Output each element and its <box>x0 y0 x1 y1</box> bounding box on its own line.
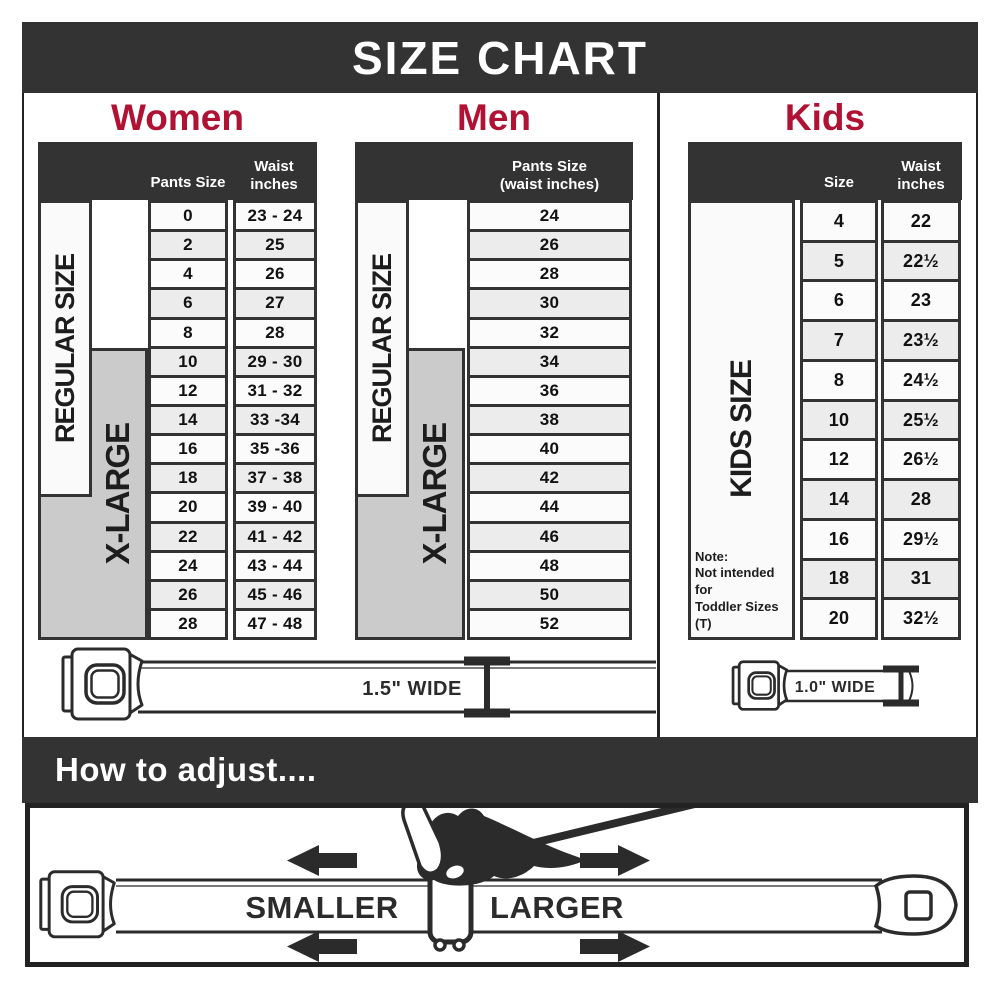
kids-table-header: Size Waist inches <box>688 142 962 200</box>
men-pants-size-column: 242628303234363840424446485052 <box>467 200 632 640</box>
kids-seatbelt-buckle-icon <box>733 662 787 710</box>
kids-waist-cell: 23½ <box>881 319 961 362</box>
kids-size-label-box: KIDS SIZE Note: Not intended for Toddler… <box>688 200 795 640</box>
men-size-table: Pants Size (waist inches) REGULAR SIZE X… <box>355 142 633 640</box>
men-pants-size-cell: 32 <box>467 317 632 349</box>
women-pants-size-cell: 0 <box>148 200 228 232</box>
women-waist-cell: 43 - 44 <box>233 550 317 582</box>
women-pants-size-cell: 20 <box>148 491 228 523</box>
kids-table-body: KIDS SIZE Note: Not intended for Toddler… <box>688 200 962 640</box>
kids-waist-cell: 29½ <box>881 518 961 561</box>
men-xlarge-label: X-LARGE <box>416 423 454 565</box>
men-pants-size-cell: 48 <box>467 550 632 582</box>
men-table-header: Pants Size (waist inches) <box>355 142 633 200</box>
men-xlarge-region <box>355 497 410 640</box>
women-pants-size-cell: 8 <box>148 317 228 349</box>
kids-waist-cell: 22 <box>881 200 961 243</box>
women-table-header: Pants Size Waist inches <box>38 142 317 200</box>
women-waist-cell: 37 - 38 <box>233 462 317 494</box>
men-pants-size-cell: 46 <box>467 521 632 553</box>
men-pants-size-cell: 28 <box>467 258 632 290</box>
adult-belt-width-label: 1.5" WIDE <box>362 678 462 700</box>
kids-waist-cell: 31 <box>881 558 961 601</box>
women-regular-size-label-box: REGULAR SIZE <box>38 200 92 497</box>
women-pants-size-cell: 6 <box>148 287 228 319</box>
kids-size-cell: 14 <box>800 478 878 521</box>
men-pants-size-cell: 42 <box>467 462 632 494</box>
panel-left-border <box>22 93 24 737</box>
men-pants-size-cell: 26 <box>467 229 632 261</box>
arrow-left-top-icon <box>287 845 357 876</box>
kids-waist-cell: 24½ <box>881 359 961 402</box>
kids-size-cell: 10 <box>800 399 878 442</box>
women-pants-size-cell: 12 <box>148 375 228 407</box>
kids-waist-cell: 26½ <box>881 438 961 481</box>
kids-size-header: Size <box>800 174 878 192</box>
women-pants-size-cell: 28 <box>148 608 228 640</box>
pull-strap-line <box>488 808 736 854</box>
kids-waist-cell: 32½ <box>881 597 961 640</box>
kids-waist-cell: 22½ <box>881 240 961 283</box>
women-waist-cell: 28 <box>233 317 317 349</box>
larger-label: LARGER <box>490 890 624 925</box>
hand-illustration <box>403 808 736 886</box>
men-pants-size-cell: 34 <box>467 346 632 378</box>
women-pants-size-header: Pants Size <box>148 174 228 192</box>
women-size-table: Pants Size Waist inches REGULAR SIZE X-L… <box>38 142 317 640</box>
men-pants-size-cell: 38 <box>467 404 632 436</box>
kids-width-measure-icon <box>883 667 919 705</box>
men-xlarge-label-box: X-LARGE <box>407 348 465 640</box>
kids-size-cell: 6 <box>800 279 878 322</box>
title-bar: SIZE CHART <box>22 22 978 93</box>
women-pants-size-cell: 26 <box>148 579 228 611</box>
kids-size-cell: 20 <box>800 597 878 640</box>
women-pants-size-cell: 4 <box>148 258 228 290</box>
adult-seatbelt-buckle-icon <box>63 649 142 719</box>
women-waist-cell: 45 - 46 <box>233 579 317 611</box>
kids-size-cell: 8 <box>800 359 878 402</box>
kids-size-cell: 12 <box>800 438 878 481</box>
adjust-diagram: SMALLER LARGER <box>30 808 964 962</box>
arrow-left-bottom-icon <box>287 931 357 962</box>
men-table-body: REGULAR SIZE X-LARGE 2426283032343638404… <box>355 200 633 640</box>
women-pants-size-cell: 10 <box>148 346 228 378</box>
how-to-adjust-bar: How to adjust.... <box>22 737 978 803</box>
men-pants-size-cell: 52 <box>467 608 632 640</box>
women-waist-cell: 29 - 30 <box>233 346 317 378</box>
arrow-right-top-icon <box>580 845 650 876</box>
kids-waist-column: 2222½2323½24½25½26½2829½3132½ <box>881 200 961 640</box>
kids-size-cell: 4 <box>800 200 878 243</box>
men-pants-size-cell: 44 <box>467 491 632 523</box>
women-xlarge-label: X-LARGE <box>99 423 137 565</box>
kids-waist-cell: 28 <box>881 478 961 521</box>
women-waist-cell: 33 -34 <box>233 404 317 436</box>
kids-size-column: 45678101214161820 <box>800 200 878 640</box>
women-pants-size-cell: 24 <box>148 550 228 582</box>
belt-tip-icon <box>876 876 956 934</box>
kids-waist-cell: 25½ <box>881 399 961 442</box>
kids-section-title: Kids <box>688 98 962 138</box>
women-pants-size-cell: 16 <box>148 433 228 465</box>
kids-size-cell: 5 <box>800 240 878 283</box>
women-waist-header: Waist inches <box>233 158 315 194</box>
women-waist-cell: 25 <box>233 229 317 261</box>
page-title: SIZE CHART <box>352 31 648 85</box>
men-regular-size-label: REGULAR SIZE <box>367 254 398 443</box>
men-pants-size-cell: 24 <box>467 200 632 232</box>
kids-size-label: KIDS SIZE <box>725 360 759 498</box>
kids-belt-graphic: 1.0" WIDE <box>725 655 935 715</box>
women-pants-size-cell: 18 <box>148 462 228 494</box>
smaller-label: SMALLER <box>245 890 398 925</box>
women-pants-size-cell: 2 <box>148 229 228 261</box>
how-to-adjust-title: How to adjust.... <box>55 751 317 789</box>
kids-belt-width-label: 1.0" WIDE <box>795 679 876 696</box>
women-xlarge-region <box>38 497 93 640</box>
women-section-title: Women <box>38 98 317 138</box>
women-pants-size-column: 0246810121416182022242628 <box>148 200 228 640</box>
men-pants-size-header: Pants Size (waist inches) <box>467 158 632 194</box>
diagram-seatbelt-buckle-icon <box>41 872 114 937</box>
women-regular-size-label: REGULAR SIZE <box>50 254 81 443</box>
women-waist-cell: 31 - 32 <box>233 375 317 407</box>
women-pants-size-cell: 22 <box>148 521 228 553</box>
women-waist-cell: 41 - 42 <box>233 521 317 553</box>
men-regular-size-label-box: REGULAR SIZE <box>355 200 409 497</box>
kids-waist-header: Waist inches <box>881 158 961 194</box>
women-waist-cell: 47 - 48 <box>233 608 317 640</box>
men-section-title: Men <box>355 98 633 138</box>
men-pants-size-cell: 30 <box>467 287 632 319</box>
adult-belt-graphic: 1.5" WIDE <box>60 645 656 730</box>
kids-size-cell: 16 <box>800 518 878 561</box>
kids-note: Note: Not intended for Toddler Sizes (T) <box>695 549 792 633</box>
kids-waist-cell: 23 <box>881 279 961 322</box>
panel-right-border <box>976 93 978 737</box>
women-table-body: REGULAR SIZE X-LARGE 0246810121416182022… <box>38 200 317 640</box>
women-waist-cell: 35 -36 <box>233 433 317 465</box>
women-waist-cell: 26 <box>233 258 317 290</box>
women-waist-cell: 23 - 24 <box>233 200 317 232</box>
size-chart-page: SIZE CHART Women Men Kids Pants Size Wai… <box>0 0 1000 1000</box>
women-waist-cell: 27 <box>233 287 317 319</box>
men-pants-size-cell: 40 <box>467 433 632 465</box>
men-pants-size-cell: 50 <box>467 579 632 611</box>
women-xlarge-label-box: X-LARGE <box>90 348 148 640</box>
women-pants-size-cell: 14 <box>148 404 228 436</box>
arrow-right-bottom-icon <box>580 931 650 962</box>
kids-size-table: Size Waist inches KIDS SIZE Note: Not in… <box>688 142 962 640</box>
kids-size-cell: 7 <box>800 319 878 362</box>
men-pants-size-cell: 36 <box>467 375 632 407</box>
women-waist-cell: 39 - 40 <box>233 491 317 523</box>
kids-size-cell: 18 <box>800 558 878 601</box>
women-waist-column: 23 - 242526272829 - 3031 - 3233 -3435 -3… <box>233 200 317 640</box>
panel-divider <box>657 93 660 737</box>
